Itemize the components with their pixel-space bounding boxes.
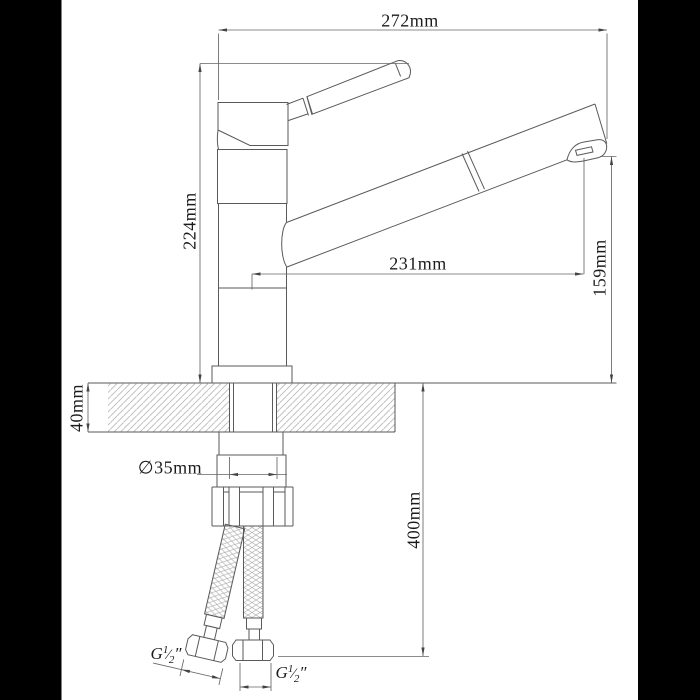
arrow (181, 668, 190, 673)
arrow (610, 157, 613, 166)
body-column (219, 204, 287, 367)
hose-nut (185, 634, 230, 663)
dim-label-thread-left: G1⁄2″ (151, 644, 182, 666)
faucet-body (212, 103, 292, 384)
arrow (198, 375, 201, 384)
handle-tip-seam (395, 63, 400, 76)
hose-ferrule (247, 618, 262, 629)
spout-joint-lines (462, 151, 485, 191)
cartridge-block (218, 103, 288, 146)
washer-plate (219, 432, 283, 455)
dimension-272 (219, 28, 608, 139)
swivel-collar (218, 150, 288, 204)
hose-braid (205, 524, 245, 618)
aerator-face (576, 147, 594, 156)
dim-label-spout-reach: 231mm (389, 254, 447, 275)
dimension-thread-right (240, 663, 271, 691)
arrow (230, 473, 239, 476)
hose-tube (249, 629, 260, 640)
arrow (599, 28, 608, 31)
hose-nut (233, 640, 274, 661)
dimension-224 (198, 64, 409, 384)
countertop-section (88, 383, 617, 432)
arrow (421, 383, 424, 392)
hose-braid (244, 526, 264, 618)
dim-label-thread-right: G1⁄2″ (276, 663, 307, 685)
drawing-linework (0, 0, 700, 700)
dim-label-mounting-hole: ∅35mm (138, 458, 202, 479)
countertop-hatch-right (277, 384, 395, 433)
thread-suffix: ″ (174, 644, 181, 663)
base-flange (212, 366, 292, 383)
arrow (212, 675, 221, 680)
spout-bottom-edge (287, 160, 567, 267)
dim-label-spout-outlet-height: 159mm (590, 239, 611, 297)
dim-label-height-above-counter: 224mm (180, 192, 201, 250)
arrow (240, 685, 249, 688)
arrow (198, 64, 201, 73)
arrow (575, 272, 584, 275)
shank-body (217, 455, 286, 487)
mounting-nut (212, 487, 293, 526)
dim-label-overall-width: 272mm (381, 11, 439, 32)
spout-top-edge (287, 104, 596, 223)
shank-through-counter (230, 383, 277, 432)
letterbox-right (638, 0, 700, 700)
thread-prefix: G (276, 663, 288, 682)
arrow (610, 375, 613, 384)
spout-end-face (595, 104, 607, 144)
faucet-spout (282, 104, 607, 267)
arrow (269, 473, 278, 476)
arrow (263, 685, 272, 688)
thread-prefix: G (151, 644, 163, 663)
handle-lever (307, 61, 411, 115)
countertop-hatch-left (108, 384, 230, 433)
dim-label-counter-thickness: 40mm (67, 384, 88, 432)
letterbox-left (0, 0, 62, 700)
thread-suffix: ″ (299, 663, 306, 682)
mounting-hardware (212, 432, 293, 526)
arrow (252, 272, 261, 275)
dim-label-hose-length: 400mm (404, 491, 425, 549)
aerator-housing (567, 140, 607, 162)
dimension-35 (197, 457, 287, 479)
faucet-technical-drawing: 272mm 224mm 231mm 159mm 40mm ∅35mm 400mm… (0, 0, 700, 700)
faucet-handle (287, 61, 411, 121)
spout-left-arc (282, 223, 287, 268)
body-arc (217, 130, 218, 150)
arrow (421, 648, 424, 657)
arrow (219, 28, 228, 31)
